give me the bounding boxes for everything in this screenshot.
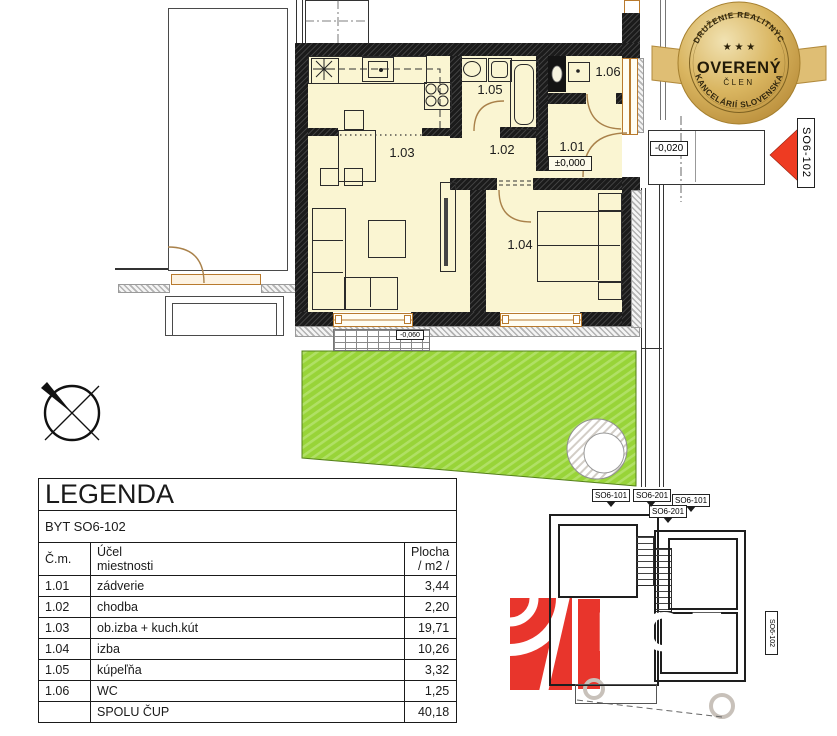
- partition-living-bedroom: [470, 190, 486, 312]
- wall-extension-lines: [296, 0, 303, 43]
- cell-name: zádverie: [91, 576, 405, 597]
- sofa: [312, 208, 346, 310]
- sofa-cushion-line: [370, 278, 371, 307]
- boundary-fence-line: [659, 185, 664, 487]
- cell-area: 10,26: [405, 639, 457, 660]
- chair: [344, 110, 364, 130]
- room-label-106: 1.06: [588, 64, 628, 79]
- siteplan-terrace: [575, 684, 657, 704]
- exterior-hatch-strip: [118, 284, 170, 293]
- col-header-purpose: Účelmiestnosti: [91, 543, 405, 576]
- cell-num: 1.05: [39, 660, 91, 681]
- wall-left: [295, 43, 308, 335]
- table-row: 1.01zádverie3,44: [39, 576, 457, 597]
- adjacent-room-outline: [168, 8, 288, 271]
- level-label-entrance: -0,020: [650, 141, 688, 156]
- room-label-105: 1.05: [470, 82, 510, 97]
- siteplan-label-pointer: [646, 501, 656, 507]
- siteplan-unit-tag: SO6-102: [765, 611, 778, 655]
- washing-machine-drum: [491, 61, 508, 78]
- cell-num: 1.04: [39, 639, 91, 660]
- table-total-row: SPOLU ČUP40,18: [39, 702, 457, 723]
- cell-area: 3,44: [405, 576, 457, 597]
- cell-name: kúpeľňa: [91, 660, 405, 681]
- partition-hall-bedroom: [450, 178, 497, 190]
- cell-num: [39, 702, 91, 723]
- partition-hall-entry: [536, 138, 548, 171]
- tv: [444, 198, 448, 266]
- col-header-area-line2: / m2 /: [418, 559, 449, 573]
- sofa-cushion-line: [313, 240, 343, 241]
- boundary-connector: [641, 348, 662, 349]
- bathtub-inner: [514, 64, 534, 125]
- badge-stars: ★ ★ ★: [723, 42, 755, 53]
- wall-stub-top-right: [622, 13, 640, 43]
- siteplan-label-pointer: [606, 501, 616, 507]
- partition-entry-bedroom: [533, 178, 622, 190]
- table-row: 1.05kúpeľňa3,32: [39, 660, 457, 681]
- coffee-table: [368, 220, 406, 258]
- cell-num: 1.03: [39, 618, 91, 639]
- legend-header-row: Č.m. Účelmiestnosti Plocha/ m2 /: [39, 543, 457, 576]
- toilet-unit: [548, 56, 566, 92]
- wall-right: [622, 43, 640, 58]
- sofa-cushion-line: [313, 272, 343, 273]
- partition-wc-entry: [548, 93, 586, 104]
- room-label-101: 1.01: [552, 139, 592, 154]
- cell-area: 3,32: [405, 660, 457, 681]
- floorplan-sheet: 1.01 1.02 1.03 1.04 1.05 1.06 ±0,000 -0,…: [0, 0, 837, 736]
- chair: [344, 168, 363, 186]
- cell-total-area: 40,18: [405, 702, 457, 723]
- chair: [320, 168, 339, 186]
- sofa: [344, 277, 398, 310]
- badge-subtitle: ČLEN: [723, 78, 754, 87]
- cell-area: 19,71: [405, 618, 457, 639]
- bed: [537, 211, 622, 282]
- garden-area: [302, 351, 636, 486]
- bed-line: [538, 245, 620, 246]
- cell-num: 1.02: [39, 597, 91, 618]
- bedroom-window: [500, 313, 582, 327]
- col-header-purpose-line1: Účel: [97, 545, 122, 559]
- kitchen-sink-basin: [368, 61, 388, 78]
- verified-badge: ZDRUŽENIE REALITNÝCH KANCELÁRIÍ SLOVENSK…: [640, 0, 837, 135]
- cell-num: 1.01: [39, 576, 91, 597]
- siteplan-room: [558, 524, 638, 598]
- room-label-104: 1.04: [500, 237, 540, 252]
- kitchen-wall-stub: [308, 128, 338, 136]
- entry-platform-step: [695, 131, 696, 182]
- table-row: 1.03ob.izba + kuch.kút19,71: [39, 618, 457, 639]
- kitchen-wall-stub: [422, 128, 450, 136]
- badge-title: OVERENÝ: [697, 58, 781, 77]
- stove: [424, 82, 452, 110]
- bed-line: [598, 212, 599, 280]
- cell-name: chodba: [91, 597, 405, 618]
- col-header-purpose-line2: miestnosti: [97, 559, 153, 573]
- shaft-outline: [305, 0, 369, 45]
- legend-table: LEGENDA BYT SO6-102 Č.m. Účelmiestnosti …: [38, 478, 457, 723]
- nightstand: [598, 193, 622, 211]
- legend-subtitle: BYT SO6-102: [39, 511, 457, 543]
- col-header-area-line1: Plocha: [411, 545, 449, 559]
- entry-platform: [648, 130, 765, 185]
- cell-total-label: SPOLU ČUP: [91, 702, 405, 723]
- table-row: 1.02chodba2,20: [39, 597, 457, 618]
- cell-num: 1.06: [39, 681, 91, 702]
- nightstand: [598, 282, 622, 300]
- level-label-terrace: -0,060: [396, 330, 424, 340]
- room-label-102: 1.02: [482, 142, 522, 157]
- bcf-watermark: BCF: [596, 604, 729, 660]
- col-header-area: Plocha/ m2 /: [405, 543, 457, 576]
- living-window: [333, 313, 413, 327]
- adjacent-steps-inner: [172, 303, 277, 336]
- adjacent-wall-line: [115, 268, 168, 270]
- cell-name: ob.izba + kuch.kút: [91, 618, 405, 639]
- window-marker-top: [624, 0, 640, 14]
- col-header-num: Č.m.: [39, 543, 91, 576]
- table-row: 1.06WC1,25: [39, 681, 457, 702]
- level-label-interior: ±0,000: [548, 156, 592, 171]
- washbasin: [460, 58, 487, 82]
- legend-title: LEGENDA: [39, 479, 457, 511]
- siteplan-stairs: [636, 536, 654, 586]
- table-row: 1.04izba10,26: [39, 639, 457, 660]
- cell-name: WC: [91, 681, 405, 702]
- siteplan-label-pointer: [663, 517, 673, 523]
- adjacent-door: [171, 274, 261, 285]
- tv-cabinet: [440, 182, 456, 272]
- north-arrow-icon: [41, 382, 99, 440]
- wall-bottom: [295, 312, 333, 326]
- exterior-hatch-right: [631, 190, 642, 328]
- cell-area: 1,25: [405, 681, 457, 702]
- ventilation-unit: [311, 58, 339, 84]
- wall-bottom: [411, 312, 500, 326]
- cell-area: 2,20: [405, 597, 457, 618]
- wall-top: [295, 43, 640, 56]
- wc-washbasin: [568, 62, 590, 82]
- room-label-103: 1.03: [382, 145, 422, 160]
- siteplan-label-pointer: [686, 506, 696, 512]
- cell-name: izba: [91, 639, 405, 660]
